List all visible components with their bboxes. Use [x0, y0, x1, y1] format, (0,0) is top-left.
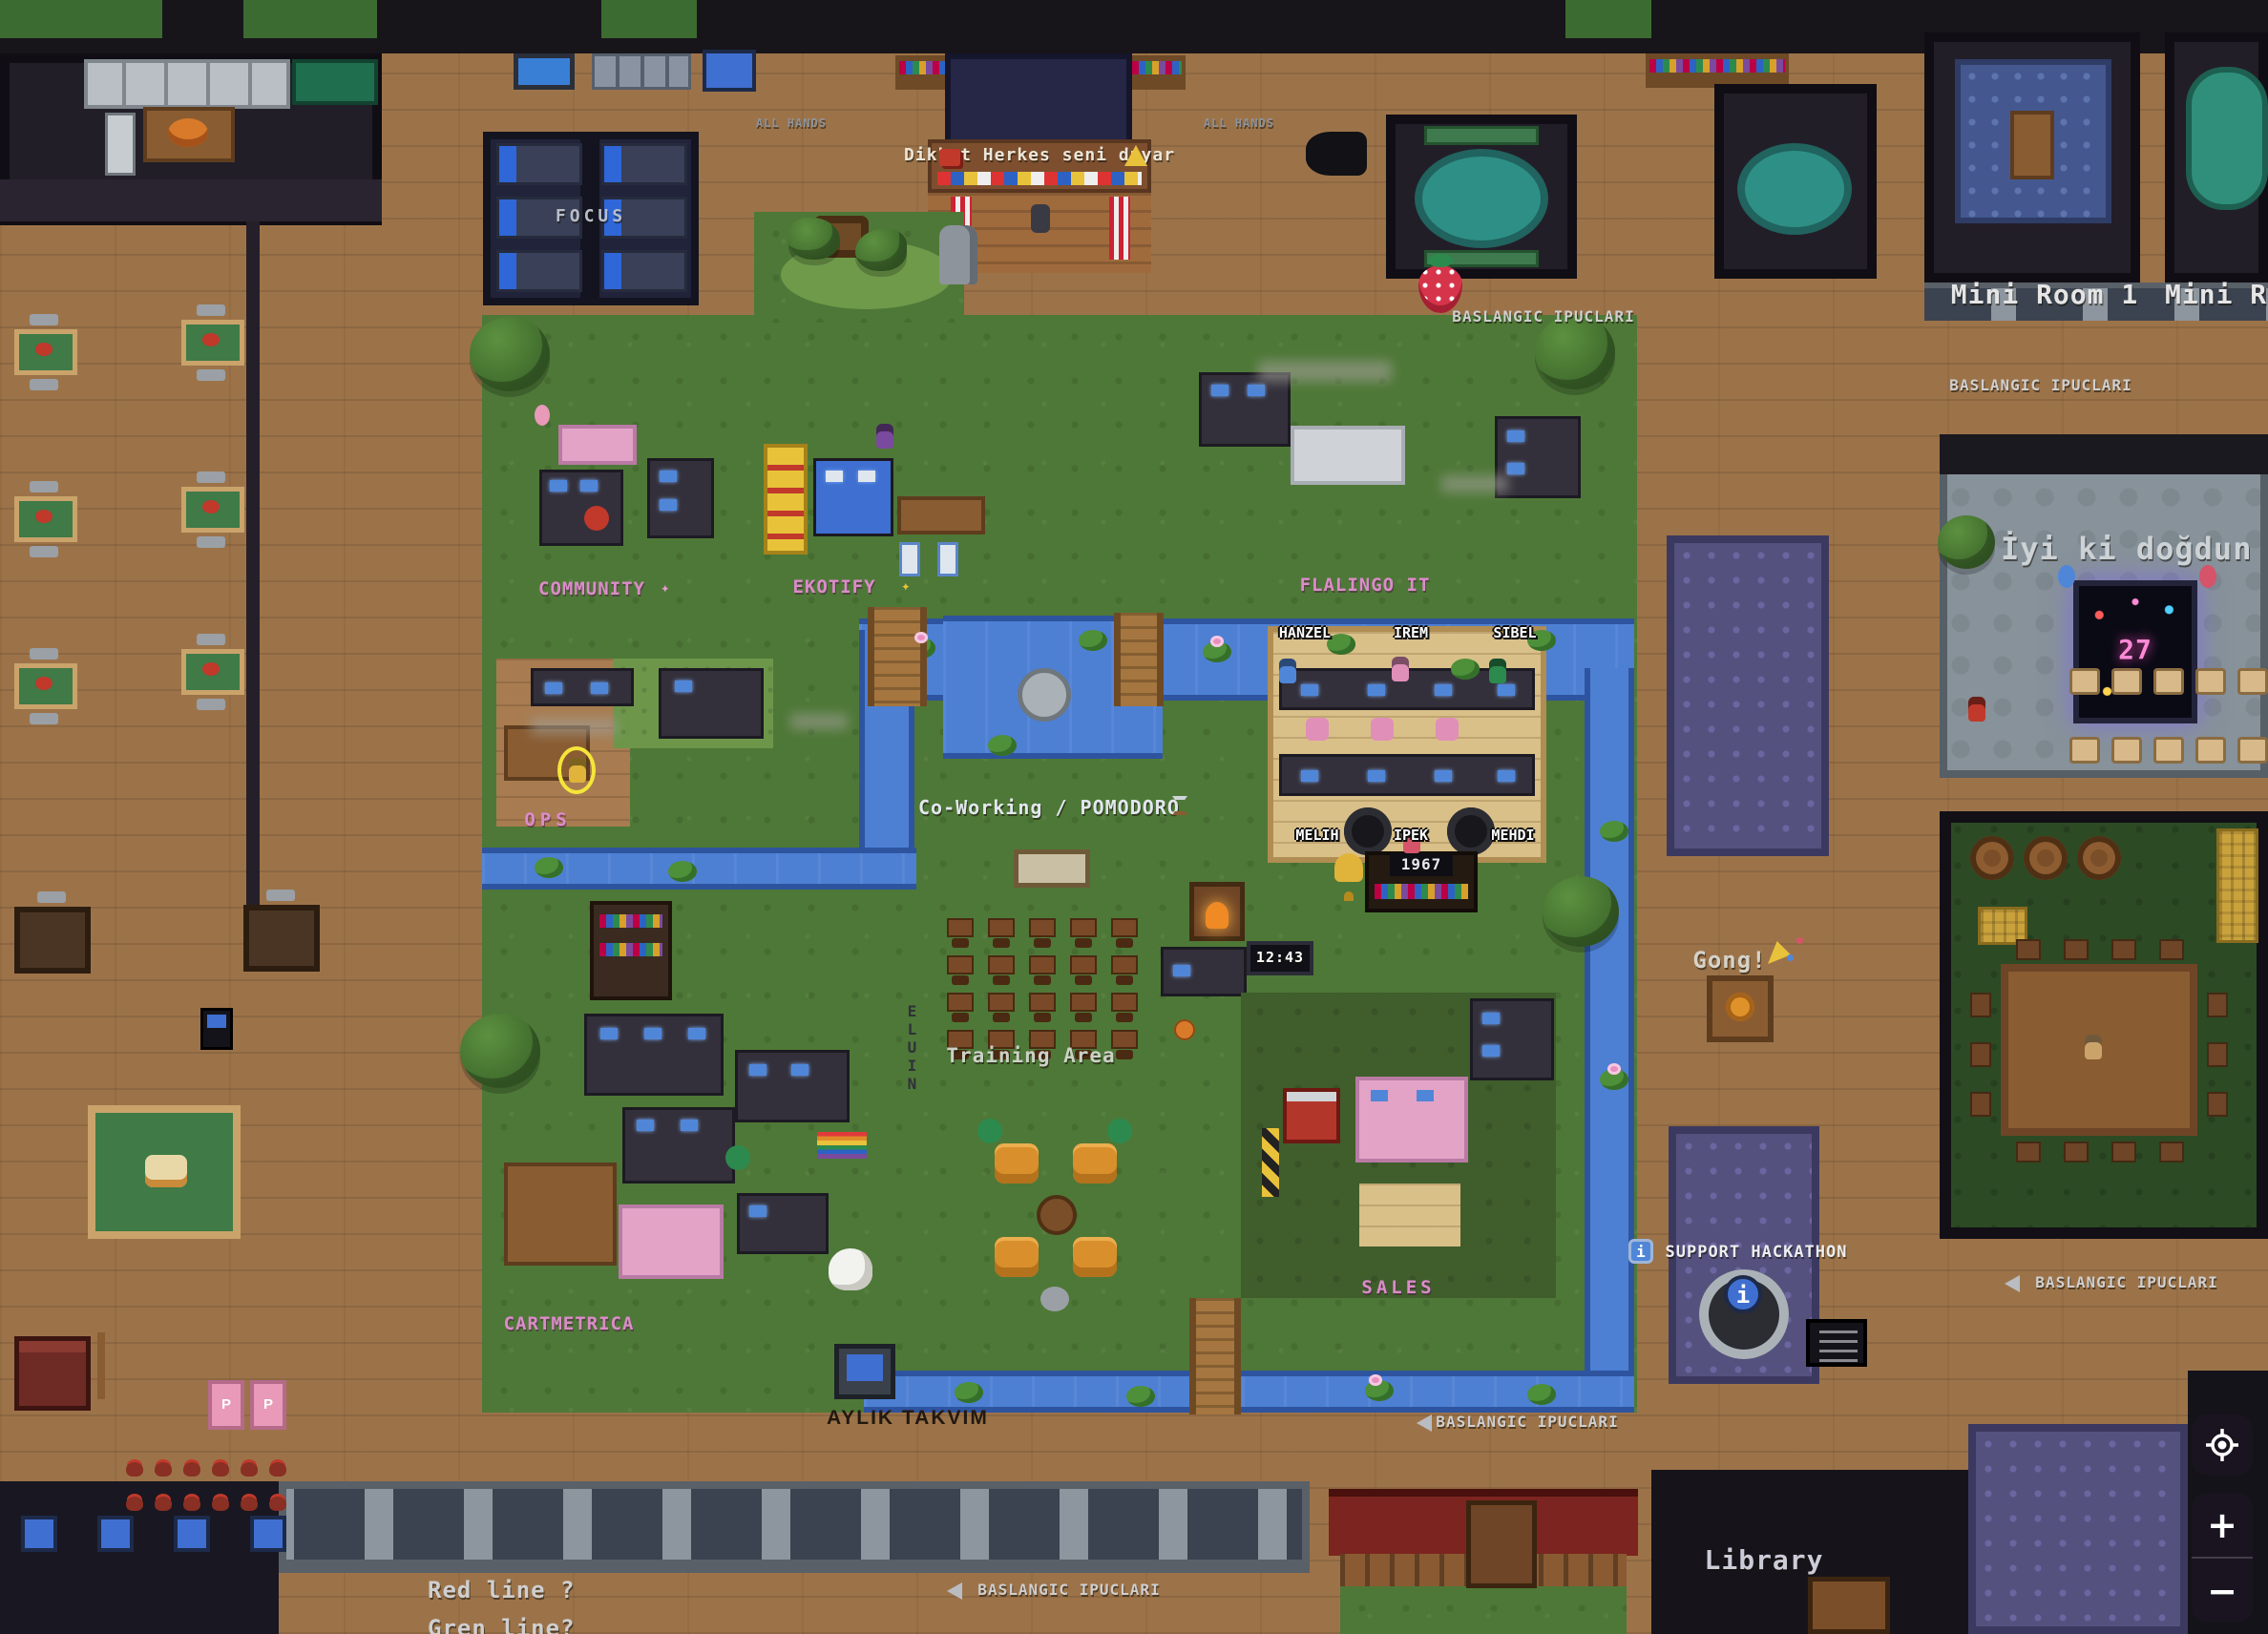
pond-table	[1018, 668, 1071, 722]
bookshelf	[1128, 55, 1186, 90]
parking-letter: P	[221, 1396, 231, 1413]
lily-flower	[914, 632, 928, 643]
dining-chair	[266, 890, 295, 901]
parking-machine: P	[208, 1380, 244, 1430]
scoreboard-text: 12:43	[1256, 949, 1304, 966]
library-door[interactable]	[1808, 1577, 1890, 1634]
monitor	[1507, 463, 1524, 474]
barrel	[1970, 836, 2014, 880]
monitor	[545, 682, 562, 694]
training-desk	[1029, 993, 1056, 1012]
sales-pink-desk	[1355, 1077, 1468, 1163]
workstation	[735, 1050, 850, 1122]
lily-pad	[1126, 1386, 1155, 1407]
training-board	[1014, 849, 1090, 888]
armchair	[1073, 1143, 1117, 1184]
training-desk	[1111, 993, 1138, 1012]
monitor	[1173, 965, 1190, 976]
focus-cubicle	[496, 250, 582, 292]
meeting-chair	[2064, 939, 2089, 960]
training-chair	[1075, 1013, 1092, 1022]
notice-board	[1806, 1319, 1867, 1367]
monitor	[681, 1120, 698, 1131]
eluin-label: ELUIN	[903, 1002, 921, 1093]
hazard-stripe	[1262, 1128, 1279, 1197]
kitchen-lower-counter	[0, 179, 382, 221]
coffee-table	[1037, 1195, 1077, 1235]
training-chair	[1116, 1050, 1133, 1059]
ekotify-desk	[813, 458, 893, 536]
info-letter: i	[1636, 1243, 1646, 1261]
chicken	[126, 1497, 143, 1511]
pouf	[1040, 1287, 1069, 1311]
library-label: Library	[1704, 1544, 1823, 1576]
chicken	[212, 1497, 229, 1511]
water-cooler	[899, 542, 920, 576]
chicken	[269, 1497, 286, 1511]
player-name-tag: SIBEL	[1493, 624, 1536, 641]
training-desk	[988, 918, 1015, 937]
training-chair	[1116, 975, 1133, 985]
avatar[interactable]	[1968, 697, 1985, 722]
training-chair	[1116, 938, 1133, 948]
monitor	[1301, 684, 1318, 696]
green-line-label: Gren line?	[428, 1615, 576, 1634]
grand-piano	[1306, 132, 1367, 176]
training-chair	[993, 1013, 1010, 1022]
book-spines	[599, 914, 662, 928]
chicken	[183, 1462, 200, 1477]
monitor	[858, 471, 875, 482]
aylik-kiosk[interactable]	[834, 1344, 895, 1399]
chicken	[212, 1462, 229, 1477]
training-desk	[1070, 918, 1097, 937]
bridge	[1114, 613, 1164, 706]
warning-icon	[1124, 145, 1147, 166]
dining-chair	[197, 536, 225, 548]
training-desk	[1029, 918, 1056, 937]
food-plate	[35, 343, 52, 356]
zoom-pill: + −	[2192, 1493, 2253, 1623]
pink-chair	[1436, 718, 1459, 741]
bookshelf	[895, 55, 953, 90]
aquarium	[514, 53, 575, 90]
training-desk	[947, 955, 974, 974]
flag-bunting	[937, 172, 1142, 185]
tree	[460, 1014, 540, 1088]
plant	[725, 1145, 750, 1170]
community-rig	[647, 458, 714, 538]
monitor	[1371, 1090, 1388, 1101]
censored-name	[1258, 361, 1392, 382]
top-hedge	[601, 0, 697, 38]
highlight-ring	[557, 746, 596, 794]
sales-desk	[1470, 998, 1554, 1080]
dark-table	[14, 907, 91, 974]
moai-statue	[939, 225, 977, 284]
community-desk	[558, 425, 637, 465]
food-plate	[202, 662, 220, 676]
food-plate	[202, 500, 220, 513]
birthday-chair	[2237, 668, 2268, 695]
focus-cubicle	[601, 250, 687, 292]
parking-letter: P	[263, 1396, 273, 1413]
meeting-chair	[2159, 939, 2184, 960]
training-desk	[1070, 993, 1097, 1012]
monitor	[637, 1120, 654, 1131]
game-desk	[1161, 947, 1247, 996]
armchair	[995, 1143, 1039, 1184]
fridge	[105, 113, 136, 176]
chicken	[126, 1462, 143, 1477]
dining-chair	[197, 471, 225, 483]
tree	[1543, 876, 1619, 947]
lily-pad	[955, 1382, 983, 1403]
tree	[470, 317, 550, 391]
ops-corner-desk	[659, 668, 764, 739]
book-spines	[899, 61, 949, 74]
flalingo-desk	[1199, 372, 1291, 447]
meeting-chair	[2207, 1092, 2228, 1117]
sandwich-plate	[145, 1155, 187, 1187]
top-hedge	[0, 0, 162, 38]
lounge-table-oval	[1737, 143, 1852, 235]
support-hackathon-label: SUPPORT HACKATHON	[1666, 1243, 1848, 1262]
tips-label: BASLANGIC IPUCLARI	[1949, 376, 2131, 394]
flalingo-it-label: FLALINGO IT	[1300, 575, 1431, 596]
parking-machine: P	[250, 1380, 286, 1430]
arrow-left-icon	[1417, 1414, 1432, 1432]
monitor	[1248, 385, 1265, 396]
birthday-chair	[2153, 668, 2184, 695]
chicken	[155, 1497, 172, 1511]
community-desk	[539, 470, 623, 546]
megaphone-icon	[939, 149, 960, 166]
monitor	[1301, 770, 1318, 782]
avatar[interactable]	[1392, 657, 1409, 681]
wall-divider	[246, 221, 260, 966]
gong-stand	[1707, 975, 1774, 1042]
shelf-year: 1967	[1401, 855, 1442, 873]
book-spines	[1375, 884, 1468, 899]
training-chair	[1034, 975, 1051, 985]
monitor	[826, 471, 843, 482]
training-area-label: Training Area	[946, 1044, 1115, 1067]
birthday-label: İyi ki doğdun Esma	[2001, 531, 2268, 567]
cartmetrica-label: CARTMETRICA	[504, 1313, 635, 1334]
strawberry-decor	[1418, 265, 1462, 313]
monitor	[675, 681, 692, 692]
flalingo-desk-row	[1279, 754, 1535, 796]
palm-tree	[855, 229, 907, 271]
flalingo-white-desk	[1291, 426, 1405, 485]
monitor	[1482, 1013, 1500, 1024]
lounge-table-oval	[1415, 149, 1548, 248]
big-green-table	[88, 1105, 241, 1239]
workstation	[584, 1014, 724, 1096]
info-letter: i	[1736, 1282, 1750, 1309]
cottage-door[interactable]	[1466, 1500, 1537, 1588]
training-chair	[1116, 1013, 1133, 1022]
palm-tree	[788, 218, 840, 260]
mini-room-1-label: Mini Room 1	[1951, 279, 2138, 310]
minus-icon: −	[2207, 1573, 2237, 1609]
chicken	[155, 1462, 172, 1477]
neon-number: 27	[2118, 634, 2152, 665]
lily-pad	[1079, 630, 1107, 651]
training-desk	[1070, 955, 1097, 974]
meeting-chair	[2159, 1142, 2184, 1163]
tree	[1535, 315, 1615, 389]
top-hedge	[243, 0, 377, 38]
training-desk	[1111, 918, 1138, 937]
monitor	[644, 1028, 661, 1039]
training-chair	[1034, 938, 1051, 948]
info-flag[interactable]: i	[1724, 1275, 1762, 1313]
arrow-left-icon	[947, 1582, 962, 1600]
window	[250, 1516, 286, 1552]
monitor	[749, 1205, 766, 1217]
training-desk	[947, 993, 974, 1012]
water-cooler	[937, 542, 958, 576]
cartmetrica-pink-desk	[619, 1205, 724, 1279]
community-chair	[584, 506, 609, 531]
censored-name	[531, 718, 617, 735]
meeting-chair	[2207, 1042, 2228, 1067]
plus-icon: +	[2207, 1507, 2237, 1543]
sales-label: SALES	[1361, 1277, 1435, 1298]
tips-label: BASLANGIC IPUCLARI	[2035, 1273, 2217, 1291]
sales-floor-patch	[1359, 1184, 1460, 1246]
tree	[1938, 515, 1995, 569]
lily-flower	[1369, 1374, 1382, 1386]
speaker-avatar[interactable]	[1031, 204, 1050, 233]
meeting-chair	[2111, 939, 2136, 960]
dining-chair	[30, 481, 58, 492]
office-chair	[1344, 807, 1392, 855]
sparkle-glyph: ✦	[901, 576, 911, 595]
monitor	[591, 682, 608, 694]
sparkle-icon: ✦	[661, 578, 670, 597]
dining-chair	[197, 634, 225, 645]
monitor	[791, 1064, 808, 1076]
pink-chair	[1371, 718, 1394, 741]
mini-room-2-label: Mini Ro	[2165, 279, 2268, 310]
dining-chair	[30, 314, 58, 325]
balloon	[535, 405, 550, 426]
aylik-takvim-label: AYLIK TAKVIM	[827, 1407, 989, 1430]
lily-flower	[1607, 1063, 1621, 1075]
office-map: i P P FOCUS ALL HANDS ALL HANDS Dikkat H…	[0, 0, 2268, 1634]
dining-chair	[30, 546, 58, 557]
crosshair-icon	[2206, 1429, 2238, 1461]
community-label: COMMUNITY	[538, 578, 645, 599]
armchair	[995, 1237, 1039, 1277]
zoom-out-button[interactable]: −	[2192, 1559, 2253, 1623]
ekotify-poster	[764, 444, 808, 555]
book-spines	[1132, 61, 1182, 74]
training-chair	[993, 938, 1010, 948]
armchair	[1073, 1237, 1117, 1277]
chicken	[269, 1462, 286, 1477]
basketball	[1174, 1019, 1195, 1040]
cartmetrica-desk	[504, 1163, 617, 1266]
window	[97, 1516, 134, 1552]
birthday-chair	[2069, 668, 2100, 695]
toy-truck	[1283, 1088, 1340, 1143]
balloon	[2058, 565, 2075, 588]
turkey-dish	[168, 118, 208, 147]
kitchen-cabinets	[292, 59, 378, 105]
top-hedge	[1565, 0, 1651, 38]
meeting-chair	[1970, 1092, 1991, 1117]
bridge	[868, 607, 927, 706]
confetti-dot	[1796, 937, 1803, 944]
kitchen-counter	[84, 59, 290, 109]
monitor	[1498, 770, 1515, 782]
training-chair	[952, 1013, 969, 1022]
birthday-chair	[2069, 737, 2100, 764]
food-plate	[35, 510, 52, 523]
balloon	[2199, 565, 2216, 588]
monitor	[1211, 385, 1228, 396]
zoom-in-button[interactable]: +	[2192, 1493, 2253, 1559]
birthday-chair	[2153, 737, 2184, 764]
meeting-chair	[2207, 993, 2228, 1017]
chicken	[241, 1462, 258, 1477]
cottage-yard	[1340, 1586, 1627, 1634]
locate-button[interactable]	[2192, 1414, 2253, 1476]
meeting-chair	[2016, 1142, 2041, 1163]
tips-label: BASLANGIC IPUCLARI	[977, 1581, 1160, 1599]
fire	[1206, 902, 1228, 929]
training-desk	[1029, 955, 1056, 974]
chicken	[183, 1497, 200, 1511]
censored-name	[1441, 475, 1508, 492]
lily-pad	[1451, 659, 1480, 680]
cartmetrica-desk-2	[737, 1193, 829, 1254]
monitor	[1368, 684, 1385, 696]
mini-room-2-rug	[2186, 67, 2268, 210]
dining-chair	[30, 379, 58, 390]
meeting-chair	[2064, 1142, 2089, 1163]
hay-bale	[2216, 828, 2258, 943]
ekotify-label: EKOTIFY	[792, 576, 875, 597]
player-name-tag: IPEK	[1394, 827, 1428, 844]
lily-pad	[1600, 821, 1628, 842]
meeting-chair	[1970, 993, 1991, 1017]
lily-pad	[668, 861, 697, 882]
monitor	[580, 480, 598, 492]
avatar[interactable]	[876, 424, 893, 449]
training-chair	[1034, 1013, 1051, 1022]
focus-cubicle	[496, 143, 582, 185]
lounge-sofa	[1424, 126, 1539, 145]
lily-pad	[1327, 634, 1355, 655]
window-wall	[279, 1481, 1310, 1573]
birthday-chair	[2237, 737, 2268, 764]
screen	[207, 1015, 226, 1028]
tips-label: BASLANGIC IPUCLARI	[1452, 307, 1634, 325]
focus-label: FOCUS	[556, 206, 626, 226]
birthday-chair	[2111, 737, 2142, 764]
training-chair	[993, 975, 1010, 985]
barrel	[2024, 836, 2068, 880]
food-cart	[14, 1336, 91, 1411]
birthday-chair	[2195, 668, 2226, 695]
confetti-dot	[1787, 954, 1794, 961]
all-hands-label: ALL HANDS	[1204, 116, 1274, 130]
plant	[1107, 1119, 1132, 1143]
screen	[847, 1354, 883, 1381]
all-hands-label: ALL HANDS	[756, 116, 827, 130]
focus-cubicle	[601, 143, 687, 185]
tips-label: BASLANGIC IPUCLARI	[1436, 1413, 1618, 1431]
dark-table	[243, 905, 320, 972]
food-plate	[202, 333, 220, 346]
party-popper-icon	[1768, 941, 1791, 964]
book-spines	[599, 943, 662, 956]
coworking-label: Co-Working / POMODORO	[918, 796, 1180, 819]
player-name-tag: MELIH	[1295, 827, 1338, 844]
training-desk	[988, 955, 1015, 974]
birthday-chair	[2195, 737, 2226, 764]
player-name-tag: MEHDI	[1491, 827, 1534, 844]
lily-pad	[535, 857, 563, 878]
server-cabinet	[703, 50, 756, 92]
avatar[interactable]	[1489, 659, 1506, 683]
dining-chair	[37, 891, 66, 903]
avatar[interactable]	[1279, 659, 1296, 683]
dining-chair	[197, 304, 225, 316]
info-icon: i	[1628, 1239, 1653, 1264]
training-chair	[1075, 975, 1092, 985]
bridge-dock	[1189, 1298, 1241, 1414]
lily-pad	[1527, 1384, 1556, 1405]
lockers	[592, 53, 691, 90]
window	[174, 1516, 210, 1552]
avatar[interactable]	[2085, 1035, 2102, 1059]
office-chair	[1447, 807, 1495, 855]
monitor	[600, 1028, 618, 1039]
ops-desk	[531, 668, 634, 706]
pride-flag	[817, 1132, 867, 1159]
purple-rug	[1667, 535, 1829, 856]
dining-chair	[197, 369, 225, 381]
dining-chair	[30, 713, 58, 724]
training-chair	[952, 975, 969, 985]
monitor	[749, 1064, 766, 1076]
monitor	[660, 471, 677, 482]
censored-name	[790, 714, 848, 729]
birthday-chair	[2111, 668, 2142, 695]
training-chair	[1075, 938, 1092, 948]
broom	[97, 1332, 105, 1399]
fireplace	[1189, 882, 1245, 941]
long-table	[897, 496, 985, 534]
monitor	[1482, 1045, 1500, 1057]
stage-curtain	[1109, 197, 1130, 260]
red-line-label: Red line ?	[428, 1577, 576, 1603]
meeting-chair	[2111, 1142, 2136, 1163]
strawberry-leaf	[1428, 254, 1453, 267]
dining-chair	[30, 648, 58, 660]
player-name-tag: HANZEL	[1279, 624, 1331, 641]
gong[interactable]	[1726, 993, 1754, 1021]
bookshelf-tall	[590, 901, 672, 1000]
purple-rug-bottom	[1968, 1424, 2188, 1634]
dining-chair	[197, 699, 225, 710]
